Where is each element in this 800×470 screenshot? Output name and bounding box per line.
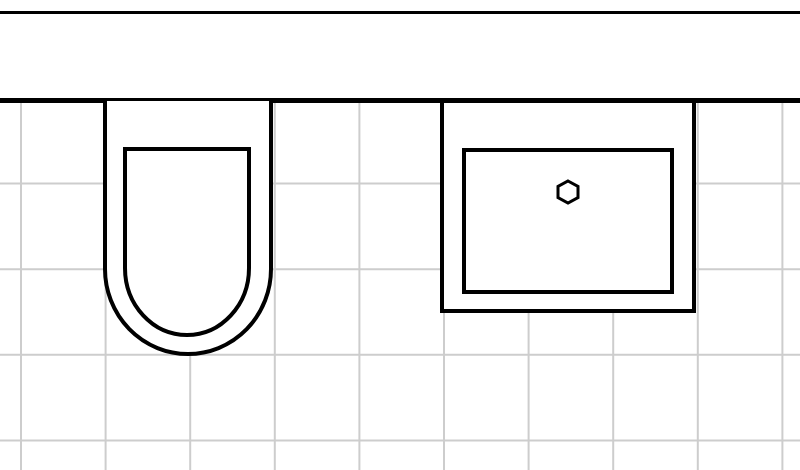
floor-plan-drawing [0,0,800,470]
toilet[interactable] [105,101,271,354]
toilet-bowl [125,149,249,335]
sink[interactable] [442,101,694,311]
wall[interactable] [0,0,800,101]
wall-fill [0,0,800,100]
floor-plan-canvas [0,0,800,470]
sink-drain-hexagon [558,181,578,203]
sink-basin [464,150,672,292]
